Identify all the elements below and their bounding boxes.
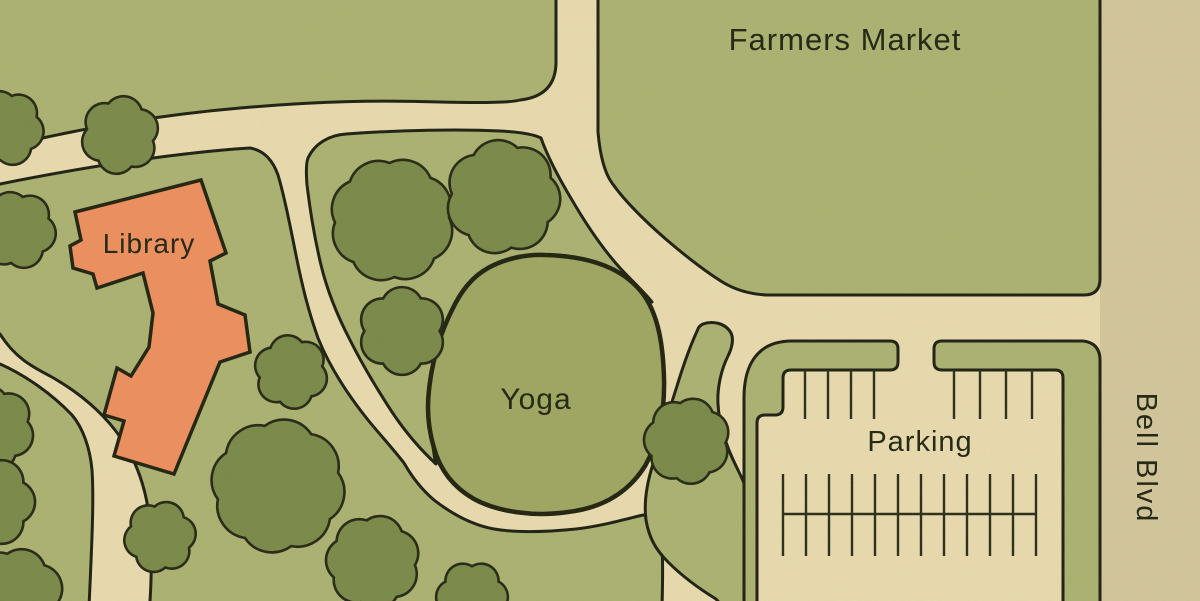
- svg-text:Bell Blvd: Bell Blvd: [1130, 393, 1162, 524]
- svg-text:Library: Library: [103, 228, 196, 259]
- svg-text:Parking: Parking: [867, 426, 972, 458]
- svg-text:Yoga: Yoga: [500, 383, 571, 416]
- svg-text:Farmers Market: Farmers Market: [729, 22, 962, 57]
